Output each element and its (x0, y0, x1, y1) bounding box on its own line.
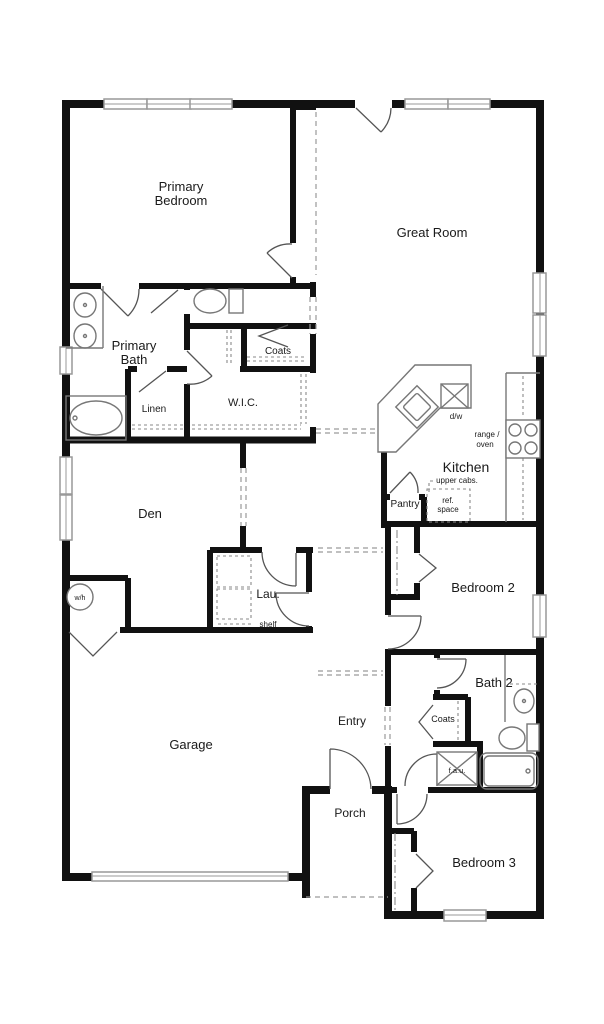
label-shelf: shelf (260, 620, 278, 629)
label-range-1: range / (475, 430, 501, 439)
bedroom2-door-icon (388, 616, 421, 649)
label-dishwasher: d/w (450, 412, 463, 421)
label-coats-1: Coats (265, 346, 291, 357)
opening-entry-east (385, 707, 390, 745)
sink-drain-icon (84, 304, 87, 307)
linen-door-icon (139, 371, 166, 392)
label-ref-1: ref. (442, 496, 454, 505)
label-linen: Linen (142, 404, 166, 415)
window-icon (104, 99, 147, 109)
laundry-north-door-icon (262, 552, 296, 586)
label-kitchen: Kitchen (443, 459, 490, 475)
window-icon (533, 273, 546, 313)
bathtub-deck (66, 396, 126, 440)
label-porch: Porch (334, 806, 365, 820)
upper-cabs-line (429, 481, 436, 492)
opening-den (241, 468, 246, 526)
label-ref-2: space (437, 505, 459, 514)
opening-hall-2 (318, 671, 383, 675)
window-icon (190, 99, 232, 109)
opening-hall-1 (318, 548, 383, 552)
bathtub-icon (70, 401, 122, 435)
closet3-bifold-icon (416, 854, 433, 888)
great-room-door-icon (356, 108, 391, 132)
water-heater-door-icon (69, 632, 117, 656)
window-icon (533, 315, 546, 356)
primary-bedroom-door-icon (267, 244, 292, 278)
label-upper-cabs: upper cabs. (436, 476, 478, 485)
window-icon (60, 457, 72, 494)
toilet-tank-icon (229, 289, 243, 313)
label-fau: f.a.u. (449, 766, 466, 775)
label-primary-bath: Primary (112, 338, 157, 353)
sink-icon (74, 293, 96, 317)
pantry-door-icon (390, 472, 418, 493)
label-pantry: Pantry (391, 499, 420, 510)
label-coats-2: Coats (431, 714, 455, 724)
tub-faucet-icon (526, 769, 530, 773)
window-icon (147, 99, 191, 109)
label-water-heater: w/h (74, 595, 86, 602)
toilet-tank-icon (527, 724, 539, 751)
sink-drain-icon (84, 335, 87, 338)
bedroom3-door-icon (397, 794, 427, 824)
toilet-room-door-icon (151, 290, 178, 313)
label-primary-bath-2: Bath (121, 352, 148, 367)
bathtub-icon (480, 753, 538, 789)
label-laundry: Lau. (256, 587, 279, 601)
label-bedroom-3: Bedroom 3 (452, 855, 516, 870)
label-great-room: Great Room (397, 225, 468, 240)
entry-door-icon (330, 749, 371, 789)
label-den: Den (138, 506, 162, 521)
closet2-bifold-icon (419, 554, 436, 582)
sink-icon (514, 689, 534, 713)
dryer-outline (217, 589, 251, 619)
window-icon (448, 99, 490, 109)
window-icon (405, 99, 448, 109)
window-icon (60, 495, 72, 540)
label-bath-2: Bath 2 (475, 675, 513, 690)
wall-closet2 (388, 524, 417, 600)
exterior-walls (62, 100, 544, 919)
label-primary-bedroom: Primary (159, 179, 204, 194)
window-icon (533, 595, 546, 637)
floor-plan: Primary Bedroom Great Room Primary Bath … (0, 0, 604, 1024)
toilet-bowl-icon (499, 727, 525, 749)
wic-rod (301, 374, 306, 424)
coats1-shelf (247, 357, 305, 361)
opening-hall-north (316, 429, 380, 433)
label-entry: Entry (338, 714, 366, 728)
bath2-door-icon (437, 659, 466, 688)
garage-door-icon (92, 872, 288, 881)
tub-faucet-icon (73, 416, 77, 420)
label-primary-bedroom-2: Bedroom (155, 193, 208, 208)
sink-drain-icon (523, 700, 526, 703)
wic-door-icon (187, 351, 212, 384)
window-icon (444, 910, 486, 921)
label-range-2: oven (476, 440, 493, 449)
floor-plan-drawing: Primary Bedroom Great Room Primary Bath … (0, 0, 604, 1024)
label-garage: Garage (169, 737, 212, 752)
fau-door-icon (405, 754, 437, 786)
window-icon (60, 347, 72, 374)
wic-shelf (132, 425, 301, 429)
toilet-bowl-icon (194, 289, 226, 313)
sink-icon (74, 324, 96, 348)
washer-outline (217, 556, 251, 587)
label-bedroom-2: Bedroom 2 (451, 580, 515, 595)
label-wic: W.I.C. (228, 397, 258, 409)
primary-bath-door-icon (101, 289, 139, 316)
wic-entry-dashes (227, 330, 231, 366)
laundry-east-door-icon (276, 593, 309, 626)
